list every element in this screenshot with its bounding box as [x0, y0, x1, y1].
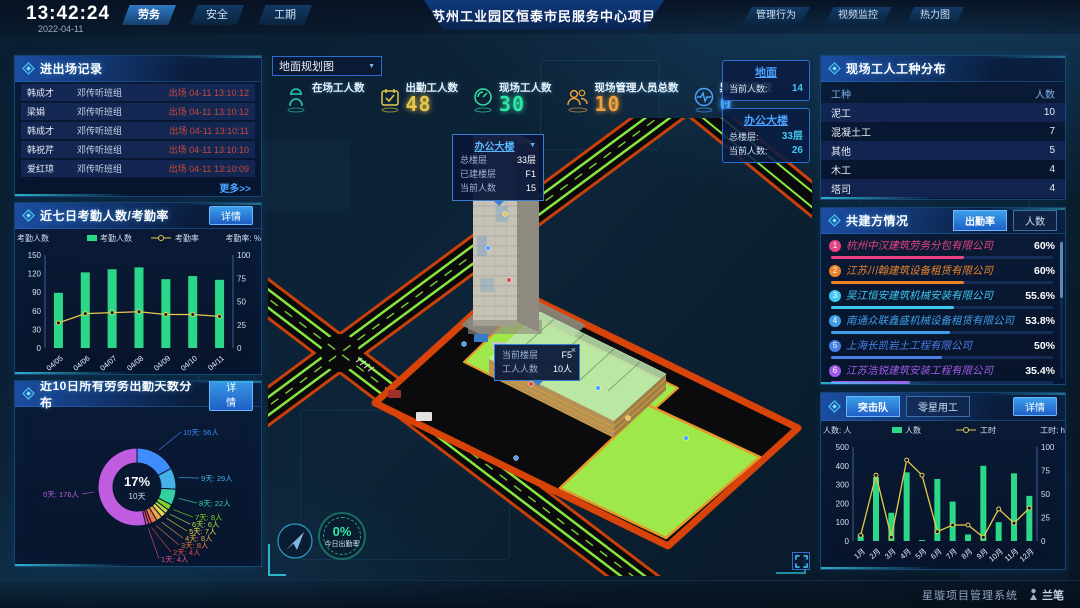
attendance-panel: 近七日考勤人数/考勤率 详情 考勤人数考勤率: %考勤人数考勤率03060901… [14, 202, 262, 375]
partner-name: 上海长凯岩土工程有限公司 [846, 338, 1029, 353]
calendar-check-icon [378, 86, 402, 114]
partners-header: 共建方情况 出勤率人数 [821, 208, 1065, 234]
svg-text:0: 0 [237, 344, 242, 353]
partner-name: 杭州中汉建筑劳务分包有限公司 [846, 238, 1029, 253]
panel-title: 近10日所有劳务出勤天数分布 [40, 380, 203, 411]
svg-text:考勤率: 考勤率 [175, 233, 199, 243]
rank-badge: 1 [829, 240, 841, 252]
top-bar: 13:42:24 2022-04-11 劳务安全工期 苏州工业园区恒泰市民服务中… [0, 0, 1080, 34]
building-tooltip-title[interactable]: 办公大楼 [460, 138, 529, 153]
entry-exit-list: 韩成才邓传听班组出场 04-11 13:10:12梁娟邓传听班组出场 04-11… [15, 84, 261, 177]
building-card[interactable]: 地面当前人数:14 [722, 60, 810, 101]
svg-text:300: 300 [836, 481, 850, 490]
fullscreen-icon [795, 555, 808, 568]
card-row-value: 14 [792, 82, 803, 96]
svg-text:04/05: 04/05 [45, 354, 65, 373]
svg-text:0: 0 [845, 537, 850, 546]
tooltip-row-label: 工人人数 [502, 362, 538, 376]
partners-tabs: 出勤率人数 [953, 210, 1057, 231]
tooltip-row-value: F1 [525, 167, 536, 181]
footer: 星璇项目管理系统 兰笔 [0, 580, 1080, 608]
building-tooltip-rows: 总楼层33层已建楼层F1当前人数15 [460, 153, 536, 195]
worker-name: 韩成才 [27, 86, 77, 99]
diamond-icon [23, 210, 34, 221]
svg-text:考勤人数: 考勤人数 [100, 233, 132, 243]
diamond-icon [829, 63, 840, 74]
trade-count: 5 [1049, 145, 1055, 156]
card-row-label: 当前人数: [729, 144, 768, 158]
trade-count: 4 [1049, 183, 1055, 194]
stat-item: 现场工人数30 [471, 80, 552, 114]
svg-text:25: 25 [1041, 514, 1050, 523]
scrollbar[interactable] [1060, 240, 1063, 378]
building-tooltip: 办公大楼 ▼ 总楼层33层已建楼层F1当前人数15 [452, 134, 544, 201]
trade-row: 泥工10 [821, 103, 1065, 122]
map-view-label: 地面规划图 [279, 58, 334, 74]
trade-row: 塔司4 [821, 179, 1065, 198]
svg-text:2月: 2月 [868, 547, 883, 561]
nav-tab-安全[interactable]: 安全 [190, 5, 244, 25]
svg-text:04/06: 04/06 [71, 354, 91, 373]
entry-exit-row: 韩祝芹邓传听班组出场 04-11 13:10:10 [21, 141, 255, 158]
svg-text:工时: h: 工时: h [1040, 425, 1065, 435]
svg-text:60: 60 [32, 307, 41, 316]
nav-tab-热力图[interactable]: 热力图 [906, 7, 964, 25]
attendance-chart: 考勤人数考勤率: %考勤人数考勤率03060901201500255075100… [15, 229, 262, 374]
nav-tab-视频监控[interactable]: 视频监控 [824, 7, 892, 25]
column-header: 人数 [1035, 86, 1055, 101]
partner-value: 60% [1034, 265, 1055, 277]
stat-value [312, 95, 365, 114]
partners-panel: 共建方情况 出勤率人数 1杭州中汉建筑劳务分包有限公司60%2江苏川翰建筑设备租… [820, 207, 1066, 385]
svg-text:8月: 8月 [960, 547, 975, 561]
svg-text:50: 50 [237, 298, 246, 307]
trades-header-row: 工种 人数 [821, 82, 1065, 103]
building-card-title: 地面 [729, 64, 803, 80]
partner-bar [831, 381, 1053, 384]
svg-text:10月: 10月 [987, 547, 1005, 564]
svg-text:5月: 5月 [914, 547, 929, 561]
partner-bar [831, 281, 1053, 284]
partner-item: 3吴江恒安建筑机械安装有限公司55.6% [829, 288, 1055, 309]
exit-event: 出场 04-11 13:10:12 [169, 105, 249, 118]
detail-button[interactable]: 详情 [1013, 397, 1057, 416]
tooltip-row-label: 已建楼层 [460, 167, 496, 181]
team-name: 邓传听班组 [77, 105, 169, 118]
pulse-icon [692, 86, 716, 114]
panel-title: 近七日考勤人数/考勤率 [40, 207, 169, 224]
dashboard: 13:42:24 2022-04-11 劳务安全工期 苏州工业园区恒泰市民服务中… [0, 0, 1080, 608]
partners-tab-出勤率[interactable]: 出勤率 [953, 210, 1007, 231]
column-header: 工种 [831, 86, 1035, 101]
people-icon [565, 86, 591, 114]
svg-text:11月: 11月 [1003, 547, 1021, 564]
stat-label: 在场工人数 [312, 80, 365, 95]
worker-name: 韩祝芹 [27, 143, 77, 156]
svg-text:100: 100 [237, 251, 251, 260]
partner-bar [831, 256, 1053, 259]
svg-text:12月: 12月 [1018, 547, 1036, 564]
svg-text:7月: 7月 [944, 547, 959, 561]
entry-exit-header: 进出场记录 [15, 56, 261, 82]
rank-badge: 2 [829, 265, 841, 277]
svg-text:04/11: 04/11 [206, 354, 226, 373]
card-row-value: 26 [792, 144, 803, 158]
partners-tab-人数[interactable]: 人数 [1013, 210, 1057, 231]
svg-text:8天: 22人: 8天: 22人 [199, 499, 231, 508]
tooltip-row-value: 15 [526, 181, 536, 195]
worker-icon [284, 86, 308, 114]
attendance-header: 近七日考勤人数/考勤率 详情 [15, 203, 261, 229]
trade-name: 塔司 [831, 181, 1049, 196]
stat-value: 48 [406, 95, 459, 114]
svg-text:50: 50 [1041, 490, 1050, 499]
chevron-down-icon[interactable]: ▼ [529, 142, 536, 149]
team-name: 邓传听班组 [77, 162, 169, 175]
partner-value: 50% [1034, 340, 1055, 352]
svg-text:17%: 17% [124, 474, 150, 489]
partner-value: 60% [1034, 240, 1055, 252]
svg-text:500: 500 [836, 443, 850, 452]
svg-text:0: 0 [37, 344, 42, 353]
squad-header: 突击队零星用工 详情 [821, 393, 1065, 421]
trades-header: 现场工人工种分布 [821, 56, 1065, 82]
team-name: 邓传听班组 [77, 143, 169, 156]
svg-text:75: 75 [1041, 467, 1050, 476]
stat-value: 30 [499, 95, 552, 114]
chevron-down-icon: ▼ [368, 63, 375, 70]
svg-text:10天: 56人: 10天: 56人 [183, 428, 219, 437]
entry-exit-row: 韩成才邓传听班组出场 04-11 13:10:11 [21, 122, 255, 139]
svg-text:400: 400 [836, 462, 850, 471]
nav-tab-管理行为[interactable]: 管理行为 [742, 7, 810, 25]
squad-chart: 人数: 人工时: h人数工时01002003004005000255075100… [821, 421, 1066, 569]
tooltip-row-label: 总楼层 [460, 153, 487, 167]
card-row-label: 当前人数: [729, 82, 768, 96]
tooltip-row-label: 当前楼层 [502, 348, 538, 362]
svg-text:考勤率: %: 考勤率: % [225, 233, 261, 243]
nav-left-group: 劳务安全工期 [122, 5, 312, 25]
map-overlay-cards: 地面当前人数:14办公大楼总楼层:33层当前人数:26 [722, 60, 810, 163]
svg-text:100: 100 [836, 518, 850, 527]
trade-row: 混凝土工7 [821, 122, 1065, 141]
rank-badge: 4 [829, 315, 841, 327]
stat-item: 出勤工人数48 [378, 80, 459, 114]
clock-time: 13:42:24 [26, 3, 110, 25]
svg-text:75: 75 [237, 274, 246, 283]
svg-text:90: 90 [32, 288, 41, 297]
card-row-label: 总楼层: [729, 130, 759, 144]
svg-text:200: 200 [836, 499, 850, 508]
trade-count: 4 [1049, 164, 1055, 175]
logo-icon [1028, 588, 1039, 601]
squad-panel: 突击队零星用工 详情 人数: 人工时: h人数工时010020030040050… [820, 392, 1066, 570]
panel-title: 现场工人工种分布 [846, 60, 946, 77]
diamond-icon [829, 215, 840, 226]
partners-list: 1杭州中汉建筑劳务分包有限公司60%2江苏川翰建筑设备租赁有限公司60%3吴江恒… [821, 234, 1065, 384]
svg-text:人数: 人: 人数: 人 [823, 425, 851, 435]
svg-text:10天: 10天 [129, 492, 146, 501]
fullscreen-button[interactable] [792, 552, 810, 570]
svg-text:4月: 4月 [898, 547, 913, 561]
entry-exit-panel: 进出场记录 韩成才邓传听班组出场 04-11 13:10:12梁娟邓传听班组出场… [14, 55, 262, 197]
logo-text: 兰笔 [1042, 587, 1064, 603]
title-banner: 苏州工业园区恒泰市民服务中心项目 [424, 0, 664, 30]
partner-name: 江苏浩锐建筑安装工程有限公司 [846, 363, 1020, 378]
svg-text:9月: 9月 [975, 547, 990, 561]
svg-text:0天: 176人: 0天: 176人 [43, 490, 79, 499]
entry-exit-row: 韩成才邓传听班组出场 04-11 13:10:12 [21, 84, 255, 101]
partner-bar [831, 356, 1053, 359]
trade-name: 混凝土工 [831, 124, 1049, 139]
floor-tooltip-rows: 当前楼层F5工人人数10人 [502, 348, 572, 376]
exit-event: 出场 04-11 13:10:11 [169, 124, 249, 137]
scrollbar-thumb[interactable] [1060, 242, 1063, 298]
panel-title: 共建方情况 [846, 212, 909, 229]
partner-item: 2江苏川翰建筑设备租赁有限公司60% [829, 263, 1055, 284]
svg-text:1月: 1月 [852, 547, 867, 561]
rank-badge: 5 [829, 340, 841, 352]
tooltip-row-label: 当前人数 [460, 181, 496, 195]
worker-name: 爱红琼 [27, 162, 77, 175]
partner-value: 53.8% [1025, 315, 1055, 327]
distribution-chart: 10天: 56人9天: 29人8天: 22人7天: 8人6天: 6人5天: 7人… [15, 407, 262, 566]
partner-bar [831, 306, 1053, 309]
svg-text:120: 120 [28, 270, 42, 279]
svg-text:9天: 29人: 9天: 29人 [201, 474, 233, 483]
brand-logo: 兰笔 [1028, 587, 1064, 603]
exit-event: 出场 04-11 13:10:10 [169, 143, 249, 156]
trades-panel: 现场工人工种分布 工种 人数 泥工10混凝土工7其他5木工4塔司4 [820, 55, 1066, 200]
building-card[interactable]: 办公大楼总楼层:33层当前人数:26 [722, 108, 810, 163]
squad-tab-零星用工[interactable]: 零星用工 [906, 396, 970, 417]
partner-bar [831, 331, 1053, 334]
clock: 13:42:24 2022-04-11 [26, 3, 110, 34]
distribution-panel: 近10日所有劳务出勤天数分布 详情 10天: 56人9天: 29人8天: 22人… [14, 380, 262, 567]
partner-item: 5上海长凯岩土工程有限公司50% [829, 338, 1055, 359]
partner-item: 6江苏浩锐建筑安装工程有限公司35.4% [829, 363, 1055, 384]
trade-name: 其他 [831, 143, 1049, 158]
team-name: 邓传听班组 [77, 86, 169, 99]
panel-title: 进出场记录 [40, 60, 103, 77]
svg-text:工时: 工时 [980, 425, 996, 435]
svg-text:04/10: 04/10 [179, 354, 199, 373]
exit-event: 出场 04-11 13:10:12 [169, 86, 249, 99]
gauge-icon [471, 86, 495, 114]
stat-item: 在场工人数 [284, 80, 365, 114]
stat-item: 现场管理人员总数10 [565, 80, 679, 114]
stat-value: 10 [595, 95, 679, 114]
nav-tab-工期[interactable]: 工期 [258, 5, 312, 25]
tooltip-row-value: 10人 [553, 362, 572, 376]
entry-exit-row: 爱红琼邓传听班组出场 04-11 13:10:09 [21, 160, 255, 177]
trade-row: 其他5 [821, 141, 1065, 160]
diamond-icon [23, 388, 34, 399]
squad-tabs: 突击队零星用工 [846, 396, 970, 417]
trade-row: 木工4 [821, 160, 1065, 179]
svg-text:0: 0 [1041, 537, 1046, 546]
svg-text:3月: 3月 [883, 547, 898, 561]
diamond-icon [829, 401, 840, 412]
svg-text:25: 25 [237, 321, 246, 330]
map-view-select[interactable]: 地面规划图 ▼ [272, 56, 382, 76]
partner-name: 南通众联鑫盛机械设备租赁有限公司 [846, 313, 1020, 328]
partner-value: 35.4% [1025, 365, 1055, 377]
nav-tab-劳务[interactable]: 劳务 [122, 5, 176, 25]
attendance-gauge: 0% 今日出勤率 [318, 512, 366, 560]
svg-text:6月: 6月 [929, 547, 944, 561]
svg-text:1天: 4人: 1天: 4人 [161, 555, 189, 564]
partner-name: 吴江恒安建筑机械安装有限公司 [846, 288, 1020, 303]
system-name: 星璇项目管理系统 [922, 587, 1018, 603]
exit-event: 出场 04-11 13:10:09 [169, 162, 249, 175]
partner-item: 4南通众联鑫盛机械设备租赁有限公司53.8% [829, 313, 1055, 334]
floor-tooltip: × 当前楼层F5工人人数10人 [494, 344, 580, 381]
stats-row: 在场工人数出勤工人数48现场工人数30现场管理人员总数10异常出勤数0 [284, 80, 772, 114]
card-row-value: 33层 [782, 130, 803, 144]
trade-name: 木工 [831, 162, 1049, 177]
team-name: 邓传听班组 [77, 124, 169, 137]
squad-tab-突击队[interactable]: 突击队 [846, 396, 900, 417]
svg-text:人数: 人数 [905, 425, 921, 435]
compass-button[interactable] [276, 522, 314, 560]
close-icon[interactable]: × [571, 345, 576, 355]
svg-text:100: 100 [1041, 443, 1055, 452]
svg-text:04/09: 04/09 [152, 354, 172, 373]
rank-badge: 3 [829, 290, 841, 302]
entry-exit-row: 梁娟邓传听班组出场 04-11 13:10:12 [21, 103, 255, 120]
svg-text:04/08: 04/08 [125, 354, 145, 373]
trade-count: 10 [1044, 107, 1055, 118]
svg-text:30: 30 [32, 325, 41, 334]
distribution-header: 近10日所有劳务出勤天数分布 详情 [15, 381, 261, 407]
gauge-label: 今日出勤率 [325, 539, 360, 549]
nav-right-group: 管理行为视频监控热力图 [742, 7, 964, 25]
rank-badge: 6 [829, 365, 841, 377]
trades-list: 泥工10混凝土工7其他5木工4塔司4 [821, 103, 1065, 198]
partner-value: 55.6% [1025, 290, 1055, 302]
clock-date: 2022-04-11 [26, 24, 110, 34]
trade-count: 7 [1049, 126, 1055, 137]
trade-name: 泥工 [831, 105, 1044, 120]
svg-text:04/07: 04/07 [98, 354, 118, 373]
svg-text:150: 150 [28, 251, 42, 260]
svg-text:考勤人数: 考勤人数 [17, 233, 49, 243]
building-card-title: 办公大楼 [729, 112, 803, 128]
diamond-icon [23, 63, 34, 74]
worker-name: 梁娟 [27, 105, 77, 118]
more-link[interactable]: 更多>> [15, 180, 251, 195]
tooltip-row-value: 33层 [517, 153, 536, 167]
gauge-value: 0% [333, 524, 352, 539]
partner-name: 江苏川翰建筑设备租赁有限公司 [846, 263, 1029, 278]
partner-item: 1杭州中汉建筑劳务分包有限公司60% [829, 238, 1055, 259]
detail-button[interactable]: 详情 [209, 380, 253, 411]
page-title: 苏州工业园区恒泰市民服务中心项目 [432, 6, 656, 25]
detail-button[interactable]: 详情 [209, 206, 253, 225]
worker-name: 韩成才 [27, 124, 77, 137]
